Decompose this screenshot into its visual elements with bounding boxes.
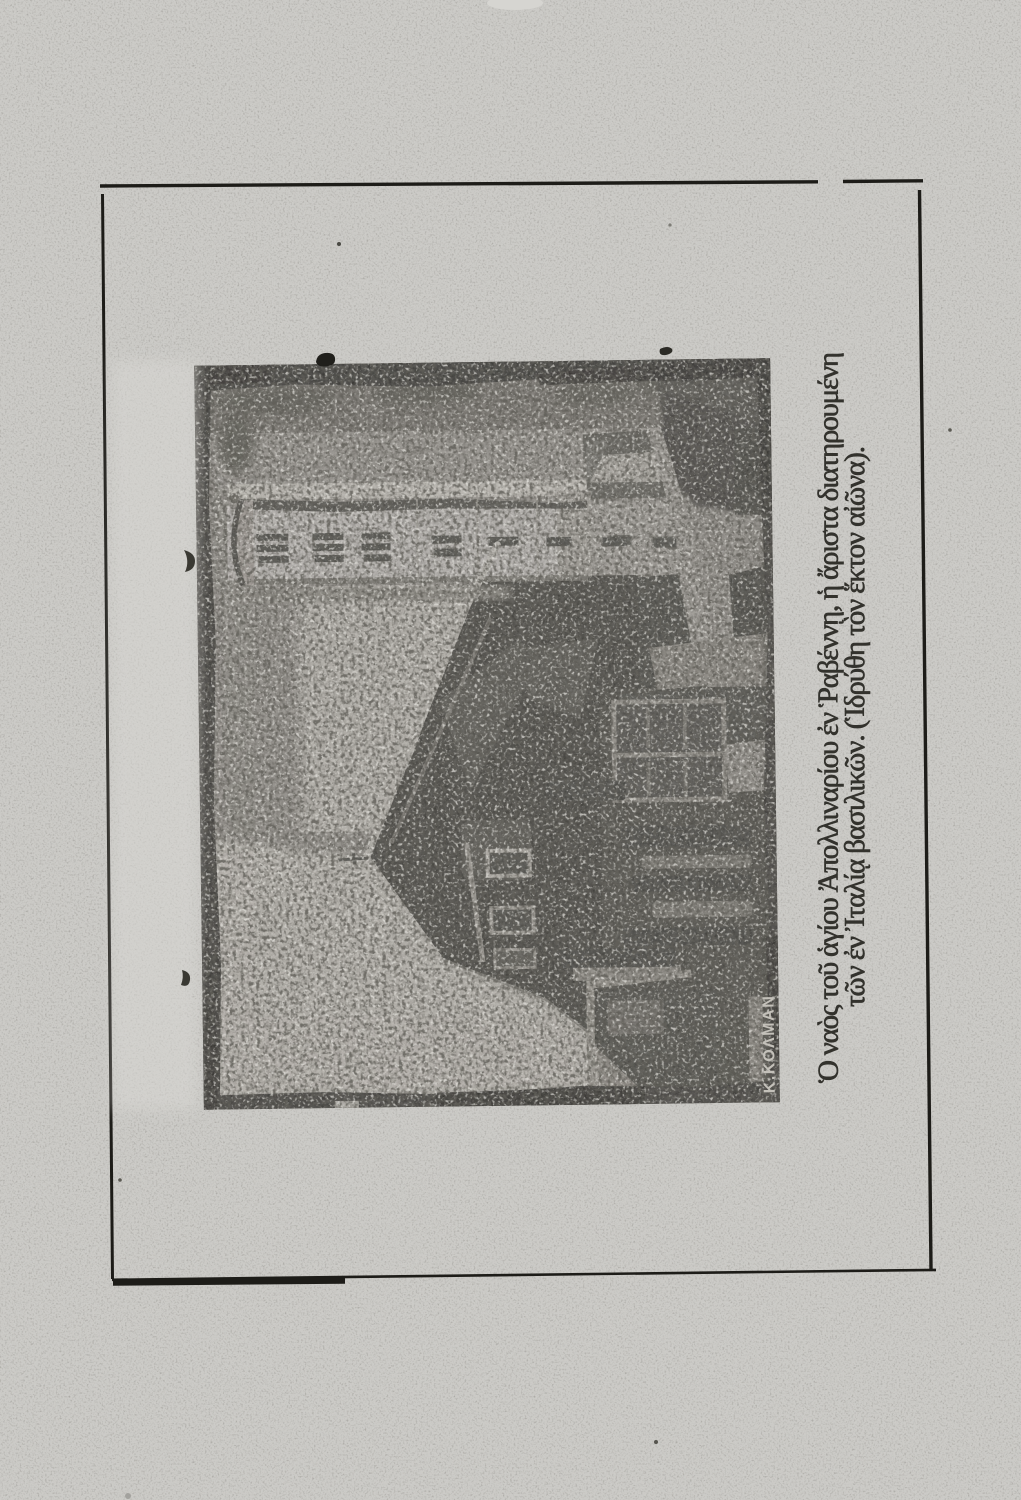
svg-text:τῶν ἐν Ἰταλίᾳ βασιλικῶν. (Ἱδρύ: τῶν ἐν Ἰταλίᾳ βασιλικῶν. (Ἱδρύθη τὸν ἕκτ… xyxy=(839,446,871,1007)
svg-text:Κ.ΚΟΛΜΑΝ: Κ.ΚΟΛΜΑΝ xyxy=(760,994,778,1093)
